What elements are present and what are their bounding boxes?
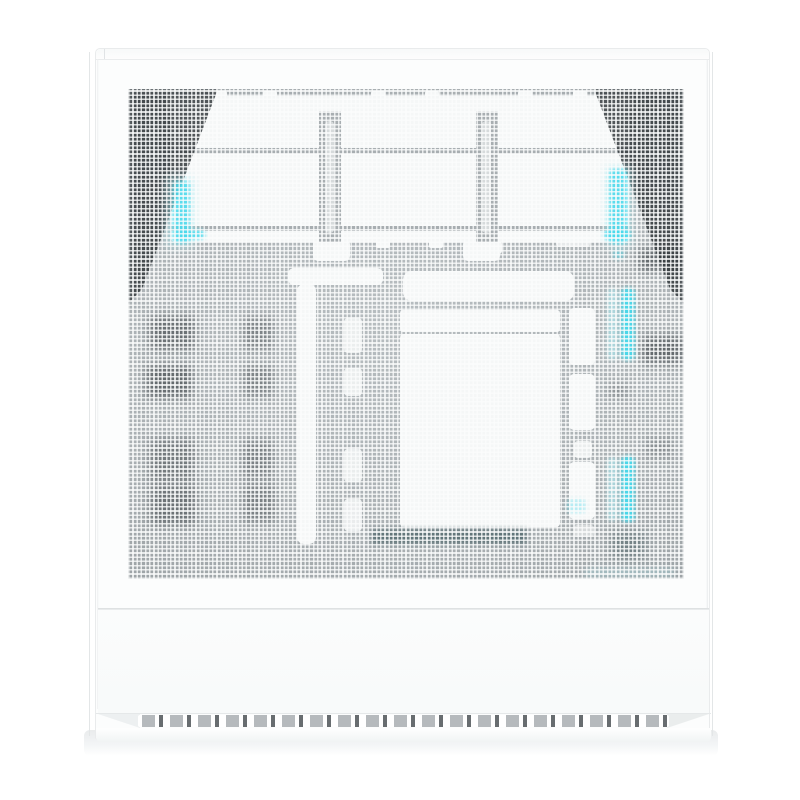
fan-bracket-tab bbox=[371, 91, 385, 97]
component-shadow bbox=[146, 365, 192, 398]
product-photo-stage bbox=[0, 0, 800, 800]
component-shadow bbox=[243, 317, 273, 350]
component-shadow bbox=[638, 249, 682, 271]
fan-silhouette-row bbox=[171, 111, 629, 242]
component-shadow bbox=[646, 439, 672, 457]
fan-mount-bump bbox=[429, 239, 443, 248]
fan-frame-line bbox=[171, 226, 629, 231]
cable-channel-silhouette bbox=[297, 284, 316, 544]
component-shadow bbox=[149, 439, 195, 481]
component-shadow bbox=[611, 531, 645, 559]
ram-strip-silhouette bbox=[569, 374, 595, 430]
front-mesh-panel bbox=[128, 89, 684, 579]
gpu-under-shadow bbox=[371, 529, 527, 544]
interior-tab-silhouette bbox=[466, 241, 502, 254]
interior-strip-silhouette bbox=[344, 449, 362, 482]
component-shadow bbox=[243, 484, 275, 522]
fan-frame-line bbox=[171, 148, 629, 154]
fan-gap-bracket bbox=[482, 121, 491, 233]
component-shadow bbox=[149, 316, 195, 350]
fan-gap-bracket bbox=[325, 121, 334, 233]
base-sill bbox=[96, 728, 711, 742]
base-chamfer-left bbox=[98, 714, 140, 728]
rgb-glow-dot bbox=[566, 499, 586, 513]
component-shadow bbox=[243, 365, 273, 397]
bottom-vent-strip bbox=[138, 715, 669, 727]
fan-mount-bump bbox=[376, 239, 390, 248]
fan-bracket-tab bbox=[425, 91, 439, 97]
component-shadow bbox=[642, 336, 684, 364]
cooler-top-bar-silhouette bbox=[403, 271, 574, 301]
ram-strip-silhouette bbox=[569, 308, 595, 365]
component-shadow bbox=[150, 485, 196, 525]
rgb-glow-tinge bbox=[583, 568, 675, 577]
interior-strip-silhouette bbox=[344, 318, 362, 353]
rgb-glow-strip-soft bbox=[607, 457, 618, 521]
interior-tab-silhouette bbox=[556, 236, 590, 247]
rgb-glow-dash bbox=[604, 230, 631, 239]
side-panel-hairline-left bbox=[89, 52, 90, 736]
fan-mount-tab bbox=[313, 239, 350, 261]
ram-strip-silhouette bbox=[574, 441, 592, 458]
rgb-glow-strip bbox=[621, 288, 635, 360]
top-panel-lip bbox=[96, 49, 709, 60]
case-base bbox=[96, 713, 711, 741]
base-chamfer-right bbox=[667, 714, 709, 728]
interior-bar-silhouette bbox=[288, 268, 383, 285]
pc-case bbox=[95, 48, 710, 740]
rgb-glow-strip-soft bbox=[607, 288, 618, 360]
component-shadow bbox=[242, 440, 273, 478]
rgb-glow-strip bbox=[621, 456, 635, 522]
side-panel-hairline-right bbox=[712, 52, 713, 736]
top-lip-notch bbox=[104, 49, 105, 59]
cooler-block-silhouette bbox=[400, 334, 560, 527]
lower-front-panel bbox=[98, 610, 709, 713]
fan-bracket-tab bbox=[263, 91, 277, 97]
fan-bracket-tab bbox=[518, 91, 532, 97]
fan-bracket-tab bbox=[573, 91, 587, 97]
rgb-glow-dash bbox=[612, 250, 625, 259]
interior-strip-silhouette bbox=[344, 368, 362, 396]
fan-bracket-top-bar bbox=[166, 96, 633, 111]
component-shadow bbox=[609, 385, 627, 397]
interior-strip-silhouette bbox=[344, 499, 362, 531]
cooler-mid-bar-silhouette bbox=[400, 310, 560, 332]
rgb-glow-dash bbox=[178, 230, 205, 239]
ram-strip-silhouette bbox=[574, 525, 594, 537]
